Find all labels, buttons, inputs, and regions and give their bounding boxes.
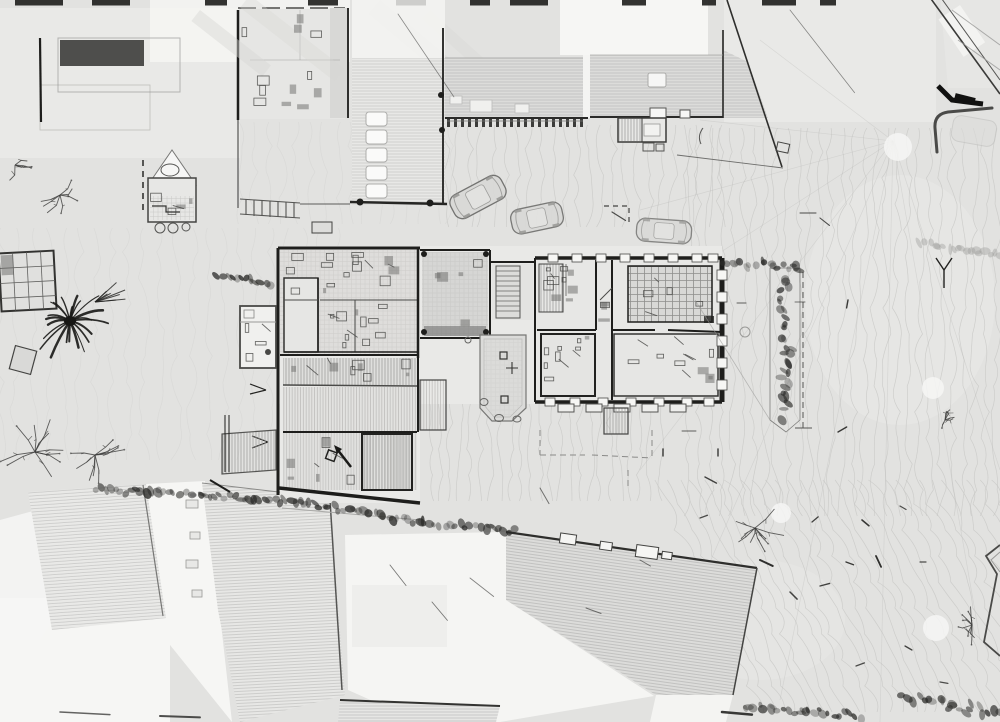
side-stair [420,380,446,430]
car [636,218,692,245]
bench [312,222,332,233]
dark-roof-strip [60,40,144,66]
garden-stair [604,408,628,434]
laser-scan-orthophoto [0,0,1000,722]
garden-pool [0,251,57,312]
tiled-room [628,266,712,322]
point-cloud-viewport [0,0,1000,722]
west-annex [240,306,276,368]
west-wing-skylights [366,112,387,198]
